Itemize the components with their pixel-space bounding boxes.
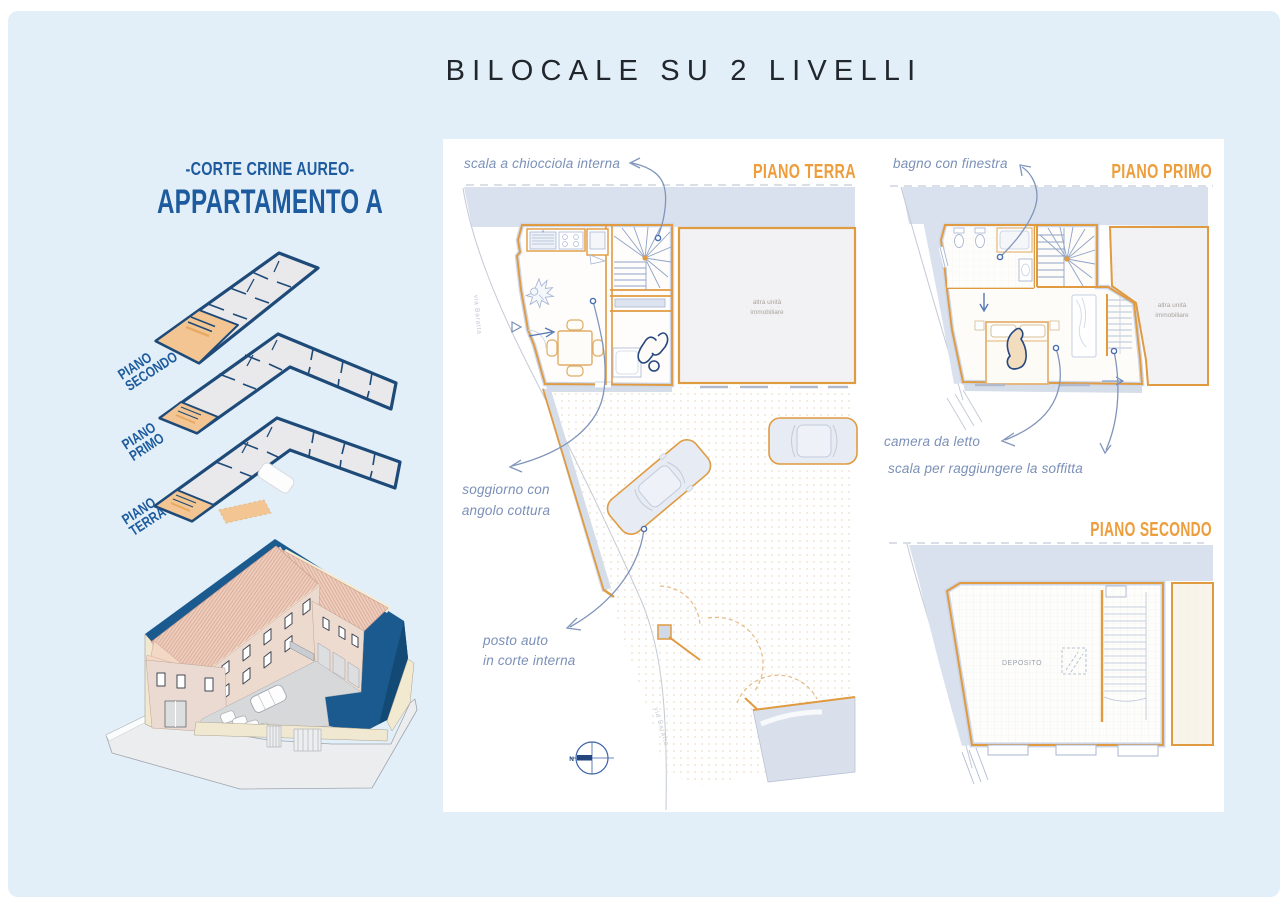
svg-text:altra unità: altra unità: [1158, 302, 1187, 309]
svg-text:altra unità: altra unità: [753, 299, 782, 306]
svg-text:PIANO SECONDO: PIANO SECONDO: [1090, 517, 1212, 540]
svg-text:immobiliare: immobiliare: [750, 309, 784, 316]
svg-text:DEPOSITO: DEPOSITO: [1002, 660, 1042, 667]
svg-text:immobiliare: immobiliare: [1155, 312, 1189, 319]
svg-text:BILOCALE SU 2 LIVELLI: BILOCALE SU 2 LIVELLI: [446, 55, 923, 87]
svg-text:-CORTE CRINE AUREO-: -CORTE CRINE AUREO-: [186, 158, 355, 179]
svg-text:scala a chiocciola interna: scala a chiocciola interna: [464, 156, 620, 171]
svg-text:PIANO TERRA: PIANO TERRA: [753, 160, 856, 183]
svg-text:posto auto: posto auto: [482, 633, 548, 648]
svg-text:N: N: [569, 756, 574, 763]
svg-text:bagno con finestra: bagno con finestra: [893, 156, 1008, 171]
svg-text:scala per raggiungere la soffi: scala per raggiungere la soffitta: [888, 461, 1083, 476]
svg-text:APPARTAMENTO A: APPARTAMENTO A: [157, 183, 383, 221]
svg-text:camera da letto: camera da letto: [884, 434, 980, 449]
svg-text:PIANO PRIMO: PIANO PRIMO: [1111, 160, 1212, 183]
svg-text:in corte interna: in corte interna: [483, 653, 576, 668]
svg-text:angolo cottura: angolo cottura: [462, 503, 551, 518]
svg-text:soggiorno con: soggiorno con: [462, 482, 549, 497]
